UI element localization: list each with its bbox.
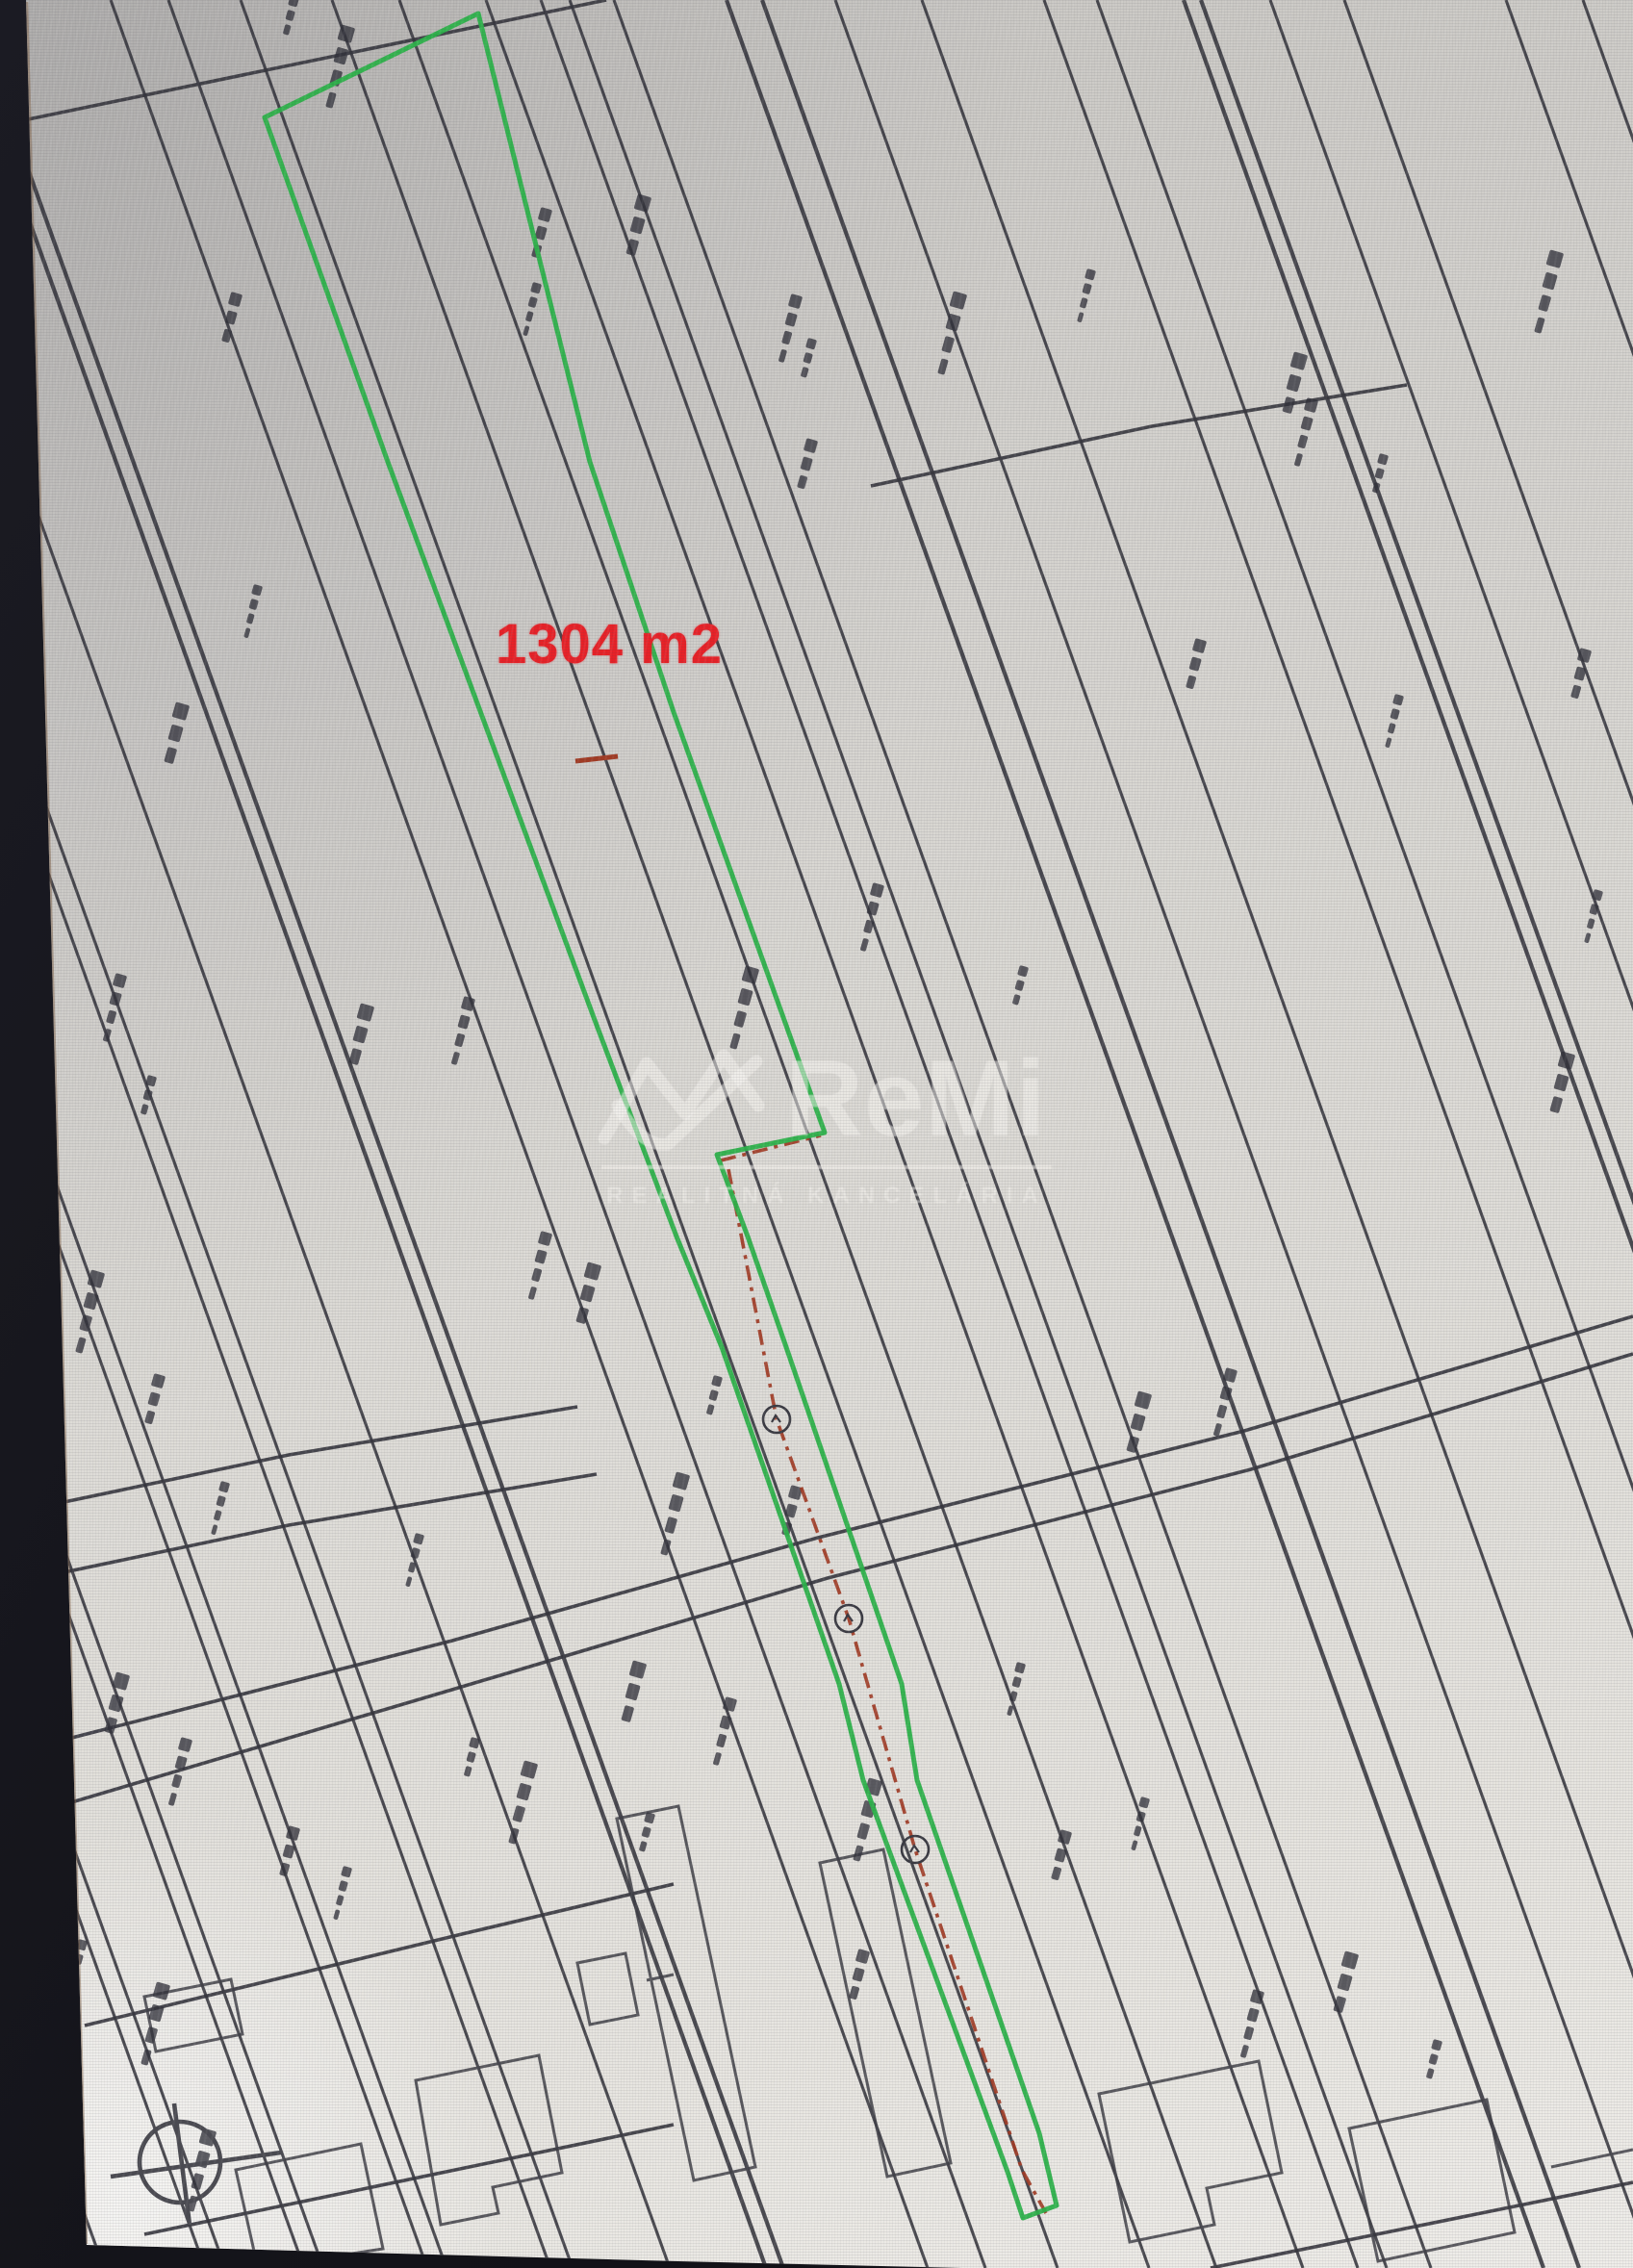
watermark-subtitle: REALITNÁ KANCELÁRIA — [601, 1183, 1052, 1210]
red-tick-mark — [575, 756, 618, 761]
photo-frame: 1304 m2 ReMi REALITNÁ KANCELÁRIA — [0, 0, 1633, 2268]
map-paper: 1304 m2 ReMi REALITNÁ KANCELÁRIA — [0, 0, 1633, 2268]
watermark: ReMi REALITNÁ KANCELÁRIA — [597, 1044, 1059, 1227]
remi-logo-icon — [597, 1044, 770, 1159]
building-outlines — [144, 1806, 1633, 2268]
watermark-brand: ReMi — [785, 1036, 1047, 1160]
sheet-edge-line — [27, 2, 87, 2244]
utility-marker-icons — [763, 1406, 929, 1863]
survey-marker-icon — [111, 2103, 281, 2225]
watermark-divider — [601, 1165, 1052, 1169]
parcel-area-label: 1304 m2 — [496, 612, 723, 676]
